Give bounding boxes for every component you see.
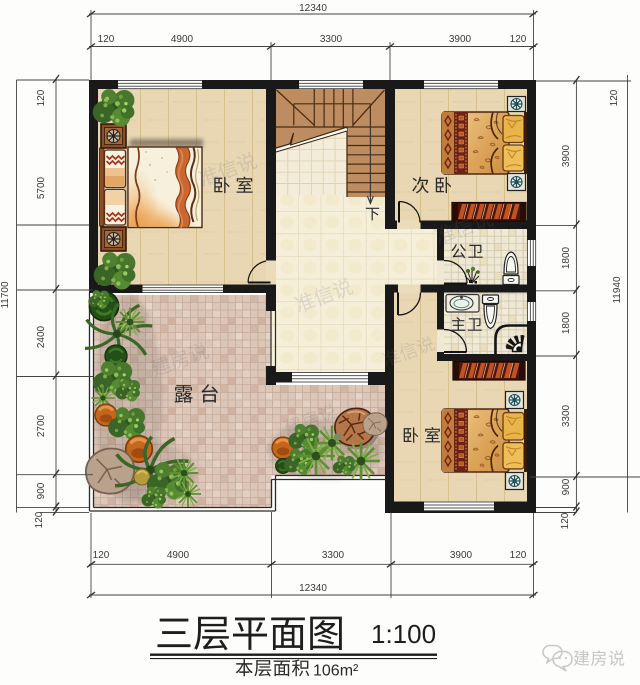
svg-text:12340: 12340 — [299, 3, 327, 14]
svg-text:900: 900 — [561, 478, 572, 495]
svg-text:5700: 5700 — [36, 176, 47, 199]
svg-text:11700: 11700 — [0, 281, 11, 309]
svg-text:3300: 3300 — [561, 404, 572, 427]
svg-text:900: 900 — [36, 482, 47, 499]
svg-text:3300: 3300 — [320, 34, 343, 45]
svg-text:3900: 3900 — [450, 550, 473, 561]
svg-text:2700: 2700 — [36, 414, 47, 437]
svg-text:3900: 3900 — [449, 34, 472, 45]
svg-text:2400: 2400 — [36, 325, 47, 348]
svg-text:120: 120 — [510, 34, 527, 45]
svg-text:120: 120 — [510, 550, 527, 561]
svg-text:11940: 11940 — [612, 276, 623, 304]
svg-text:120: 120 — [93, 550, 110, 561]
svg-text:1800: 1800 — [561, 311, 572, 334]
svg-text:1:100: 1:100 — [371, 619, 436, 649]
svg-text:3300: 3300 — [322, 550, 345, 561]
svg-text:3900: 3900 — [561, 144, 572, 167]
svg-text:120: 120 — [609, 89, 620, 106]
svg-text:4900: 4900 — [171, 34, 194, 45]
svg-text:4900: 4900 — [167, 550, 190, 561]
svg-text:106m²: 106m² — [313, 663, 359, 680]
svg-text:120: 120 — [98, 34, 115, 45]
svg-text:12340: 12340 — [299, 583, 327, 594]
svg-text:120: 120 — [34, 511, 45, 528]
svg-text:120: 120 — [36, 89, 47, 106]
svg-text:1800: 1800 — [561, 246, 572, 269]
svg-text:120: 120 — [560, 512, 571, 529]
